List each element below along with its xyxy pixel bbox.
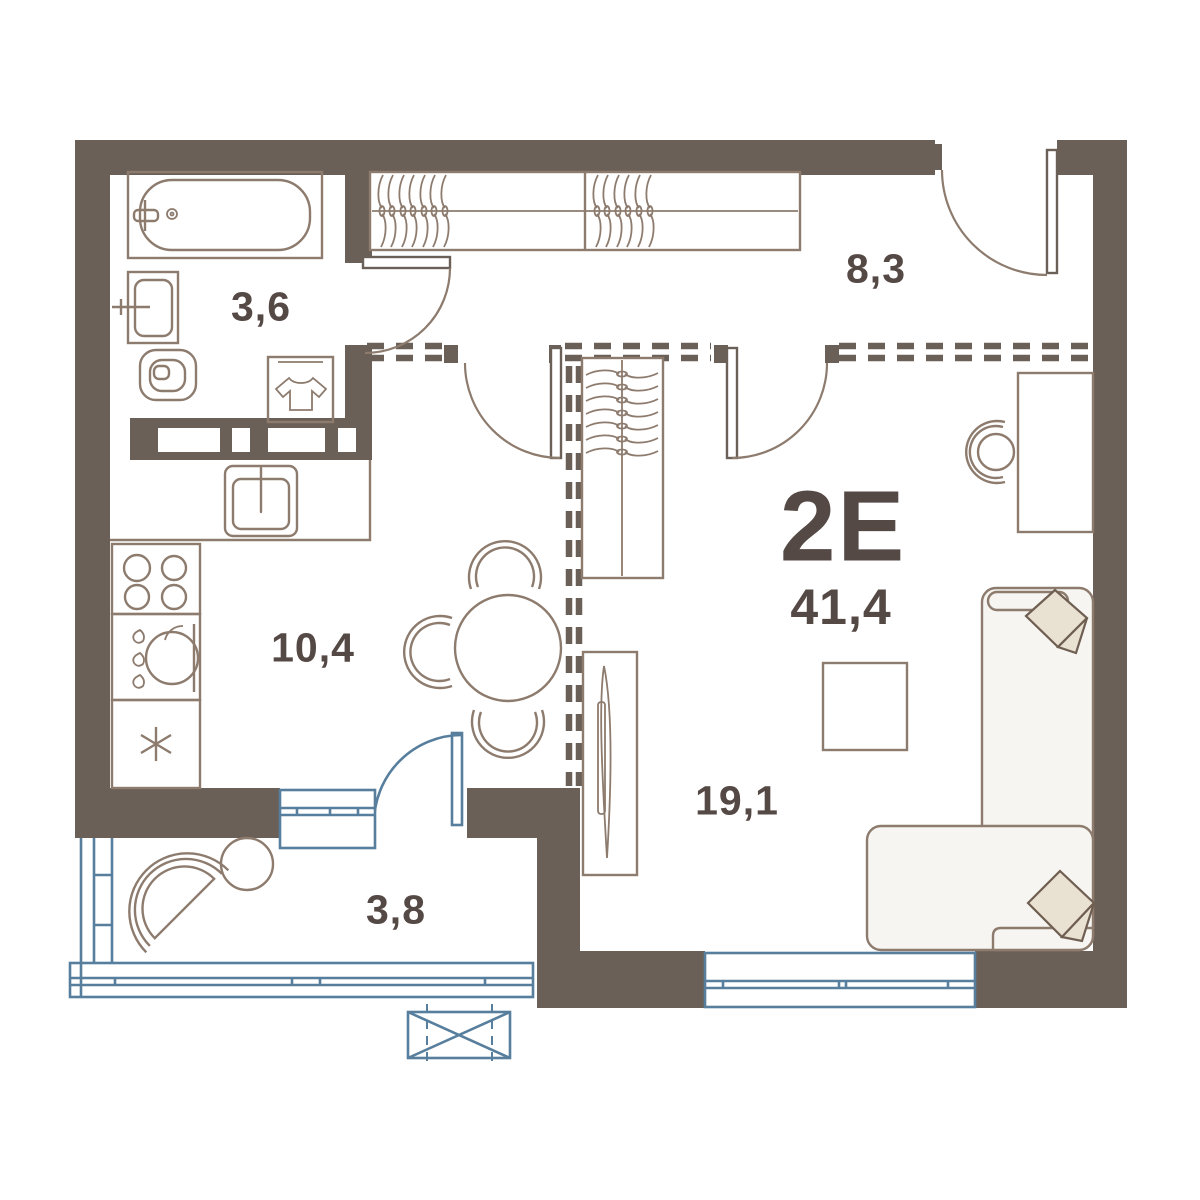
dining-set [404, 541, 561, 758]
balcony-glazing [70, 838, 533, 997]
fridge [112, 700, 200, 788]
room-area-balcony: 3,8 [366, 887, 426, 934]
bathroom-door [363, 257, 450, 353]
balcony-elements [70, 829, 533, 1066]
balcony-door [374, 733, 462, 825]
snowflake-icon [141, 727, 171, 761]
dining-chair [472, 710, 544, 758]
bathroom-sink [112, 272, 178, 343]
desk-chair [966, 421, 1014, 483]
stove [112, 544, 200, 614]
living-room-window [705, 953, 975, 1007]
room-area-hallway: 8,3 [846, 246, 906, 293]
tv-stand [583, 652, 637, 875]
living-room-door [727, 348, 827, 458]
kitchen-sink-unit [112, 614, 200, 700]
counter-sink [225, 466, 297, 536]
room-area-bathroom: 3,6 [231, 284, 291, 331]
doors [363, 150, 1057, 825]
side-table [221, 838, 273, 890]
desk [1018, 373, 1093, 532]
entrance-door [942, 150, 1057, 275]
room-wardrobe [582, 358, 663, 578]
coffee-table [823, 663, 907, 750]
bathroom-fixtures [112, 172, 333, 422]
dining-table [455, 595, 561, 701]
room-area-kitchen: 10,4 [271, 625, 355, 672]
dining-chair [469, 541, 541, 589]
floorplan-svg [0, 0, 1200, 1200]
plan-type-label: 2Е [780, 470, 906, 585]
floorplan-canvas: 3,6 8,3 10,4 19,1 3,8 2Е 41,4 [0, 0, 1200, 1200]
kitchen-window [280, 790, 375, 848]
washing-machine [268, 357, 333, 422]
t-shirt-icon [276, 378, 326, 410]
hall-closet [370, 172, 800, 250]
bathtub [128, 172, 322, 258]
dining-chair [404, 616, 452, 688]
room-area-living-room: 19,1 [695, 778, 779, 825]
sofa [867, 588, 1094, 950]
ac-unit [408, 1004, 510, 1066]
kitchen-door [465, 348, 561, 458]
balcony-armchair [105, 829, 228, 952]
toilet [140, 350, 196, 400]
plan-total-area: 41,4 [790, 578, 891, 636]
